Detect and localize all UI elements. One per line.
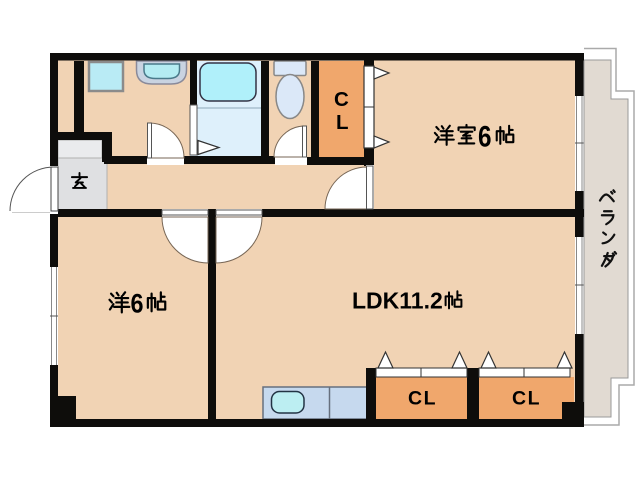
svg-text:LDK11.2: LDK11.2 xyxy=(352,288,443,314)
svg-text:L: L xyxy=(336,111,349,134)
svg-text:C: C xyxy=(334,88,349,111)
svg-text:6: 6 xyxy=(131,289,144,319)
svg-text:CL: CL xyxy=(512,388,541,410)
svg-text:CL: CL xyxy=(408,388,437,410)
svg-text:6: 6 xyxy=(478,121,492,154)
